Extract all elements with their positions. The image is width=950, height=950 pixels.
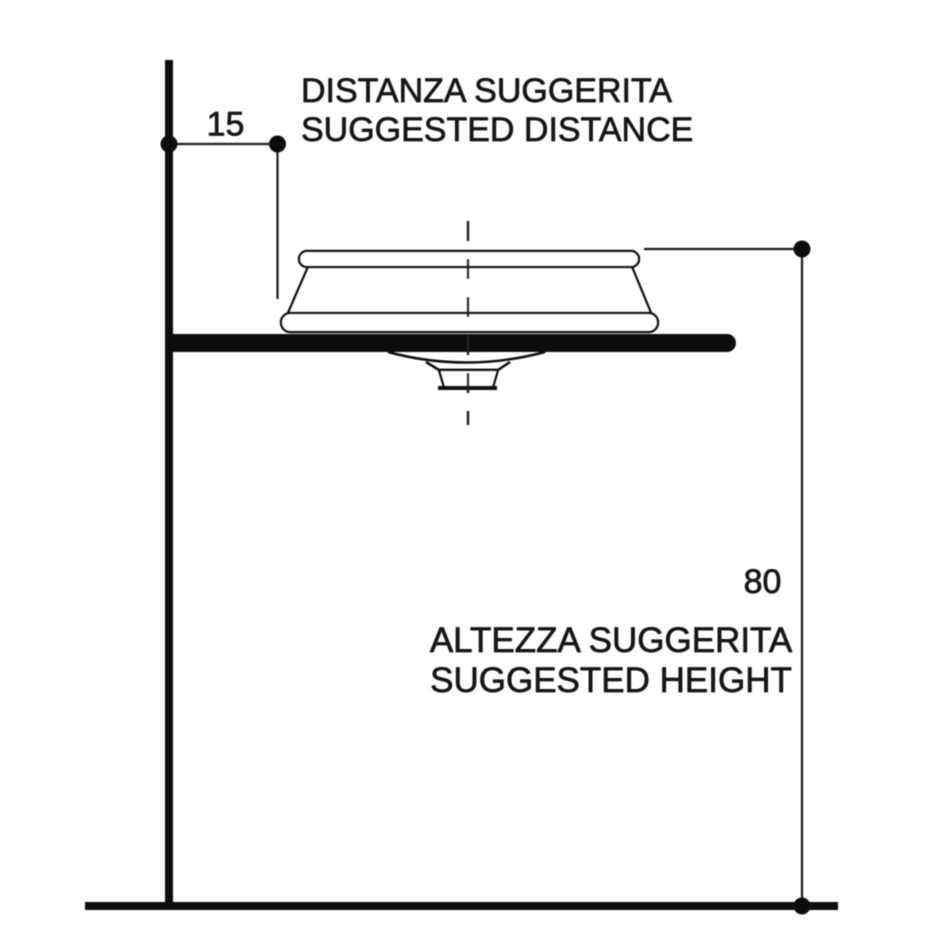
svg-text:SUGGESTED HEIGHT: SUGGESTED HEIGHT [430,661,792,700]
svg-text:DISTANZA SUGGERITA: DISTANZA SUGGERITA [301,72,672,110]
svg-text:15: 15 [207,106,245,144]
svg-text:ALTEZZA SUGGERITA: ALTEZZA SUGGERITA [430,621,793,660]
svg-text:80: 80 [744,563,782,601]
svg-text:SUGGESTED DISTANCE: SUGGESTED DISTANCE [301,111,693,149]
